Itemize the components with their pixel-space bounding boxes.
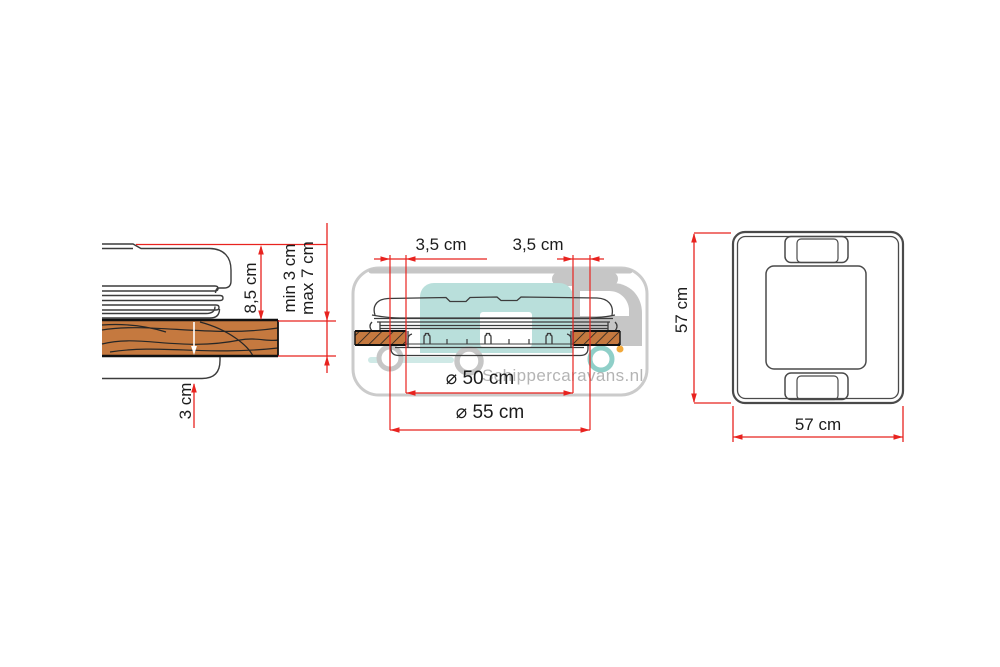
- label-flange-left: 3,5 cm: [406, 236, 476, 254]
- top-view-arrowheads: [691, 233, 903, 440]
- label-top-view-height: 57 cm: [673, 280, 691, 340]
- technical-drawing-layer: [0, 0, 1000, 667]
- diagram-canvas: Schippercaravans.nl: [0, 0, 1000, 667]
- label-roof-thickness-range: min 3 cmmax 7 cm: [281, 241, 317, 315]
- cross-section-drawing: [370, 297, 617, 356]
- label-roof-max: max 7 cm: [298, 241, 317, 315]
- label-vent-height: 8,5 cm: [242, 253, 260, 323]
- label-roof-thickness: 3 cm: [177, 376, 193, 426]
- label-top-view-width: 57 cm: [783, 416, 853, 434]
- top-view-drawing: [733, 232, 903, 403]
- label-roof-min: min 3 cm: [280, 244, 299, 313]
- label-cutout-diameter: ⌀ 50 cm: [430, 370, 530, 388]
- top-view-dimensions: [694, 233, 903, 442]
- label-flange-right: 3,5 cm: [503, 236, 573, 254]
- label-outer-diameter: ⌀ 55 cm: [440, 404, 540, 422]
